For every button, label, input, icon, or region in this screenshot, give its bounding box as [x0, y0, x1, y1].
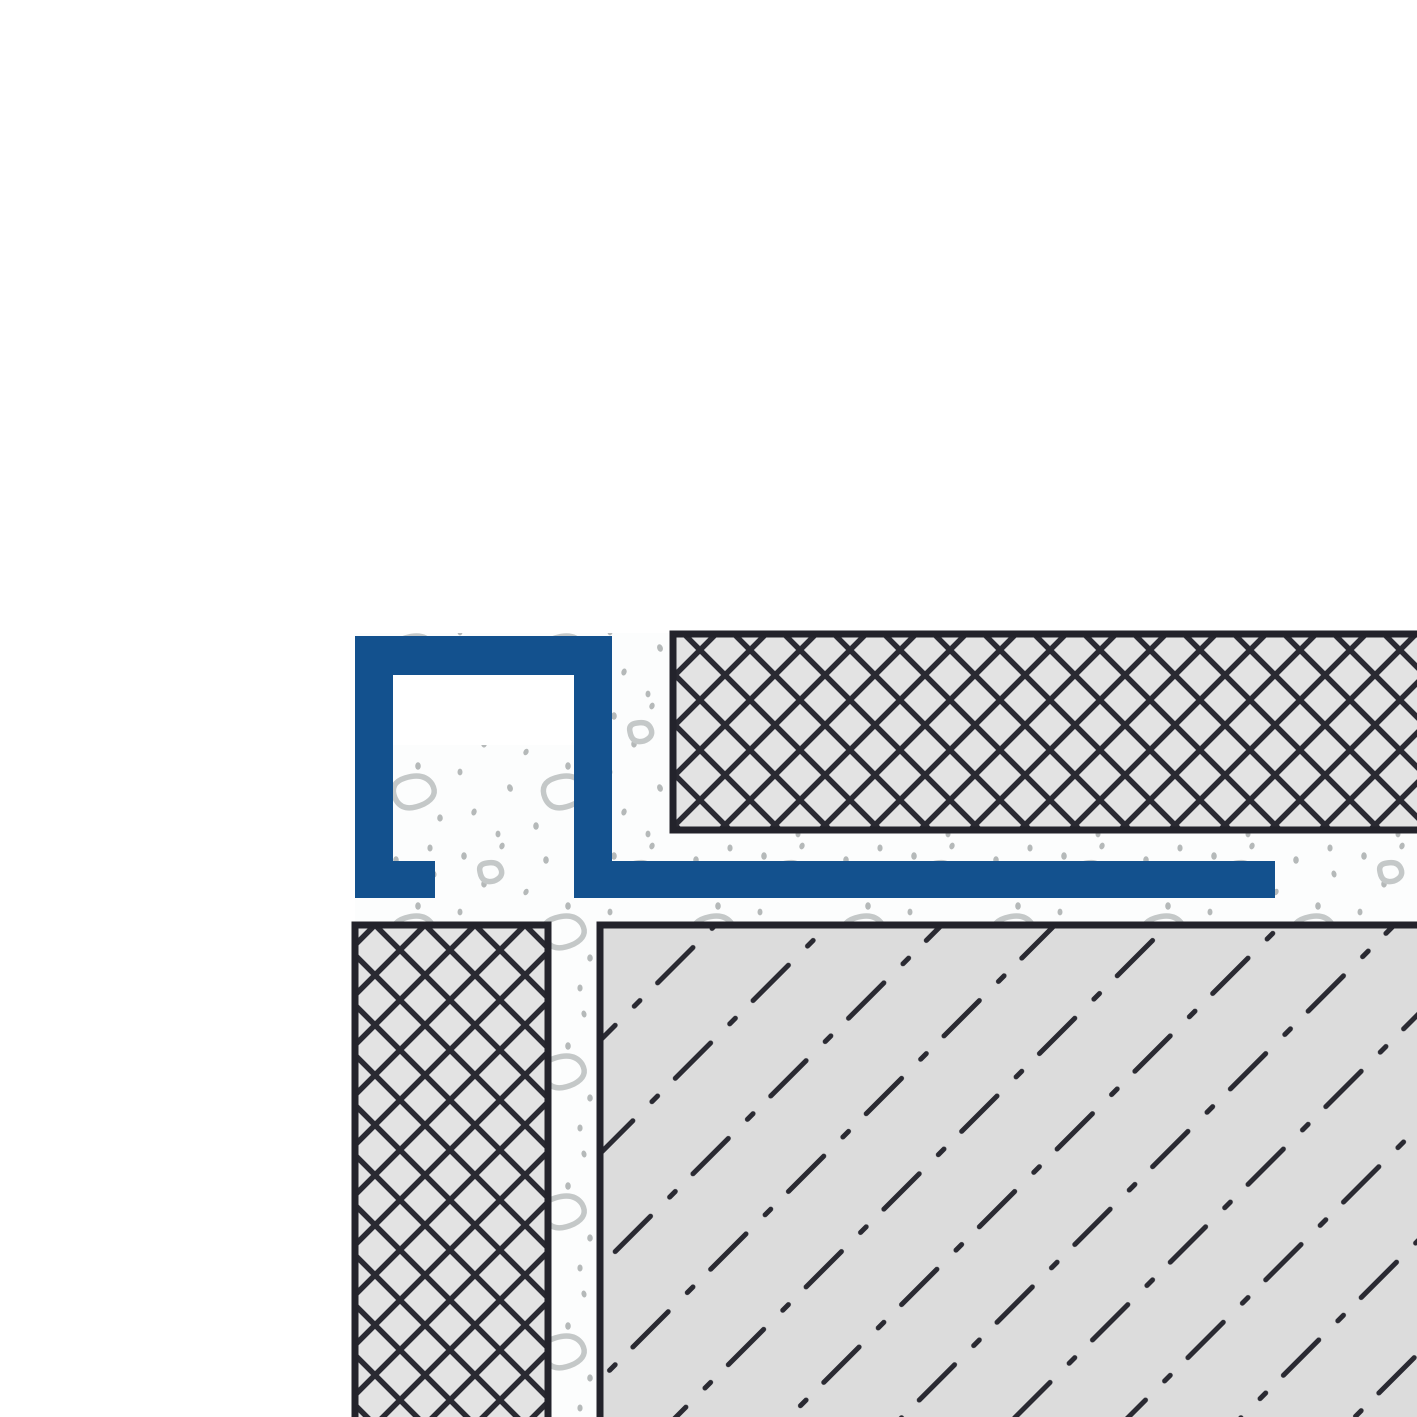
substrate [600, 925, 1417, 1417]
left-tile-hatch [355, 925, 548, 1417]
profile-bottom-lip [355, 861, 435, 898]
top-tile [673, 634, 1417, 830]
profile-top-bar [355, 636, 612, 675]
profile-left-wall [355, 636, 393, 898]
profile-right-wall [574, 636, 612, 898]
left-tile [355, 925, 548, 1417]
mortar-vertical-joint-texture [548, 925, 600, 1417]
technical-drawing-canvas: Square tile edge profile installation cr… [0, 0, 1417, 1417]
substrate-hatch [600, 925, 1417, 1417]
tile-profile-cross-section: Square tile edge profile installation cr… [0, 0, 1417, 1417]
profile-anchoring-leg [574, 861, 1275, 898]
profile-hollow-interior [393, 675, 574, 745]
top-tile-hatch [673, 634, 1417, 830]
